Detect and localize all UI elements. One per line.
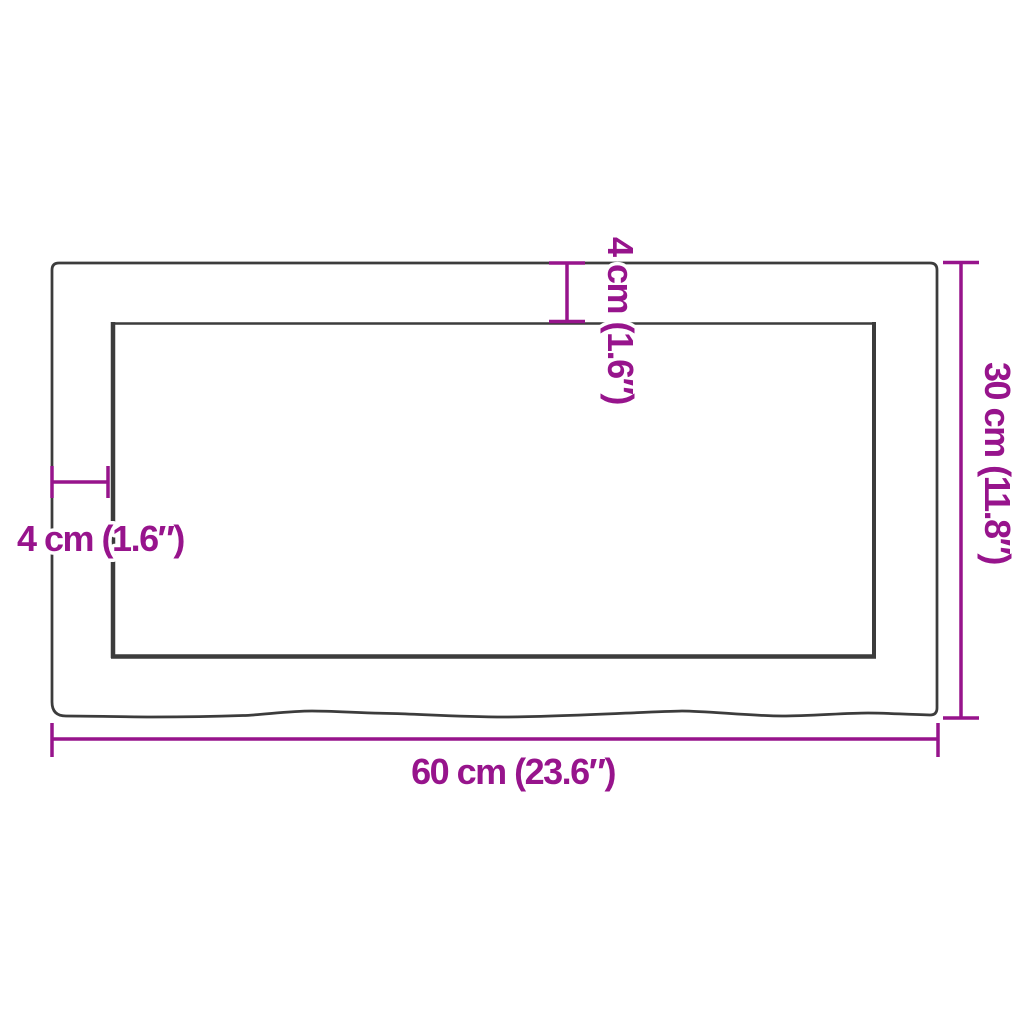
dimension-thickness-top [549,263,585,322]
dimension-thickness-left [52,466,109,498]
diagram-svg: 60 cm (23.6″) 4 cm (1.6″) 4 cm (1.6″) 30… [0,0,1024,1024]
thickness-left-label: 4 cm (1.6″) [17,518,184,559]
width-bottom-label: 60 cm (23.6″) [411,751,615,792]
dimension-height-right [943,263,979,719]
shelf-outer-outline [52,263,937,717]
thickness-top-label: 4 cm (1.6″) [600,237,641,404]
dimension-diagram: 60 cm (23.6″) 4 cm (1.6″) 4 cm (1.6″) 30… [0,0,1024,1024]
shelf-inner-edge [111,322,876,658]
height-right-label: 30 cm (11.8″) [977,362,1018,564]
